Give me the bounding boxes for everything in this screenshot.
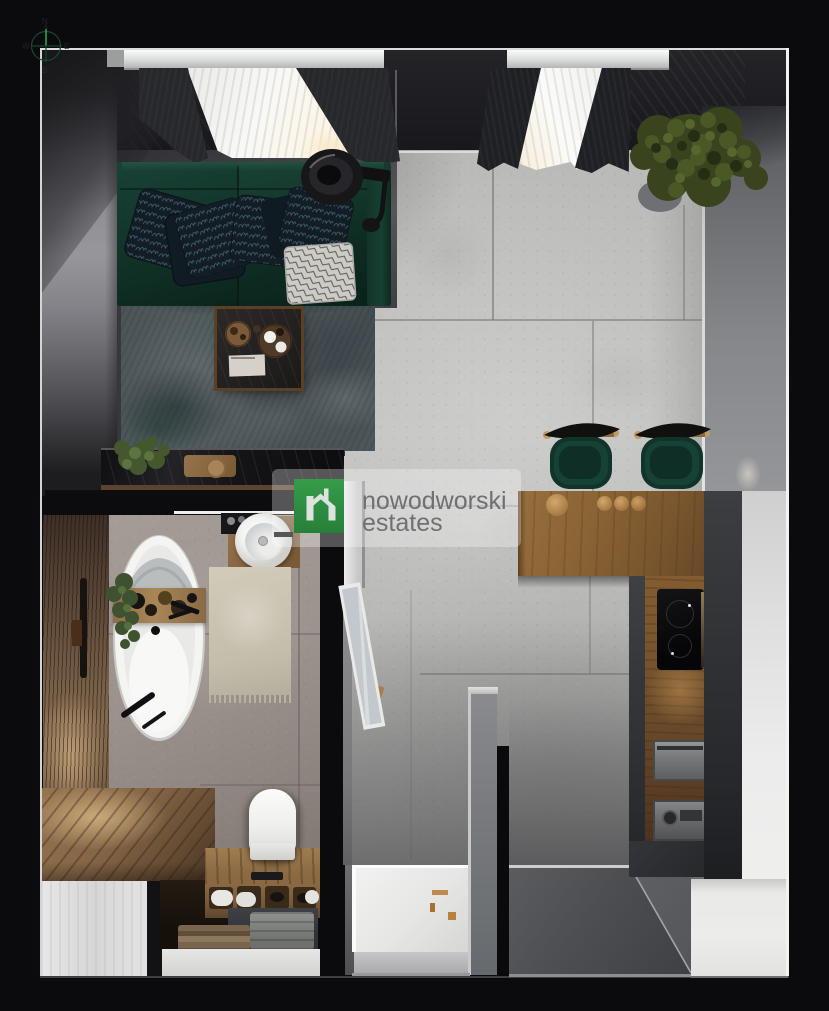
svg-text:N: N [42, 17, 48, 26]
svg-text:E: E [64, 42, 69, 51]
svg-text:S: S [42, 66, 47, 75]
svg-text:W: W [22, 42, 30, 51]
